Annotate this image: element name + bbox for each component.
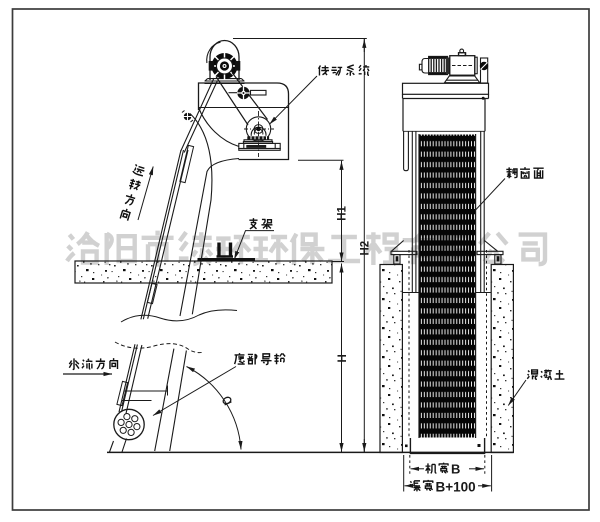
svg-text:H2: H2	[360, 241, 372, 256]
svg-text:H1: H1	[337, 205, 349, 220]
svg-text:B+100: B+100	[436, 479, 476, 494]
svg-text:B: B	[451, 461, 460, 476]
svg-text:H: H	[337, 354, 349, 362]
